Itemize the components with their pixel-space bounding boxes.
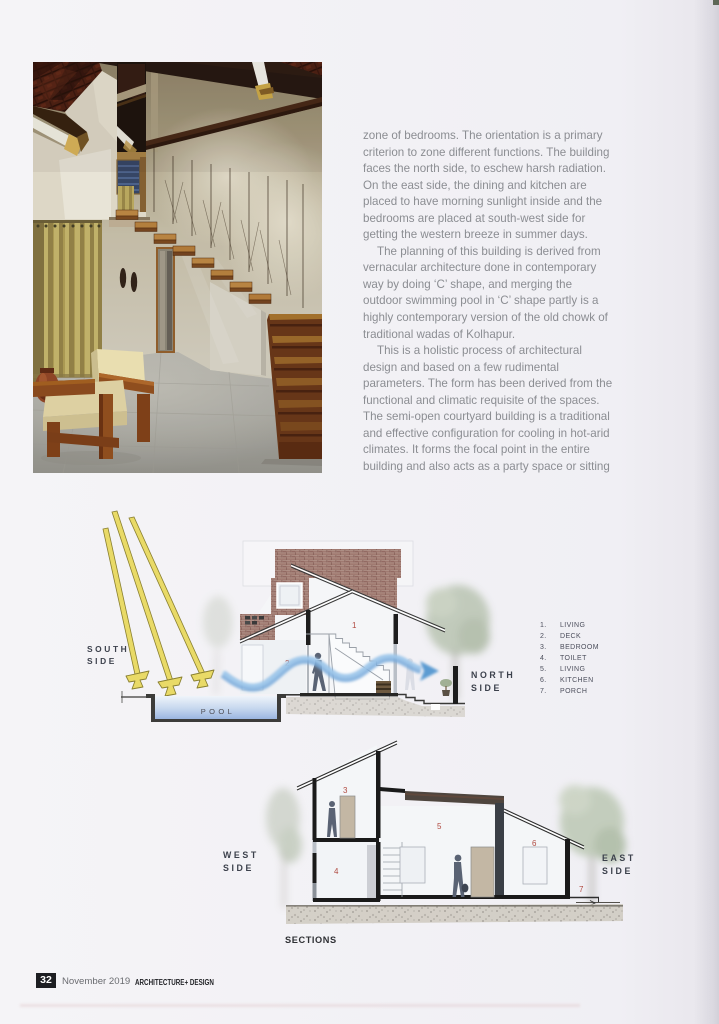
svg-text:SIDE: SIDE: [87, 656, 117, 666]
svg-text:WEST: WEST: [223, 850, 259, 860]
svg-text:KITCHEN: KITCHEN: [560, 677, 594, 684]
svg-text:7: 7: [579, 885, 584, 894]
svg-text:SIDE: SIDE: [471, 683, 502, 693]
svg-text:3: 3: [343, 786, 348, 795]
svg-text:SIDE: SIDE: [602, 866, 633, 876]
svg-text:EAST: EAST: [602, 853, 636, 863]
svg-text:1: 1: [352, 621, 357, 630]
svg-text:4.: 4.: [540, 655, 547, 662]
svg-text:2.: 2.: [540, 633, 547, 640]
svg-text:SECTIONS: SECTIONS: [285, 935, 337, 945]
svg-text:6: 6: [532, 839, 537, 848]
svg-text:LIVING: LIVING: [560, 666, 585, 673]
svg-text:7.: 7.: [540, 688, 547, 695]
svg-text:PORCH: PORCH: [560, 688, 587, 695]
svg-text:SIDE: SIDE: [223, 863, 254, 873]
svg-text:POOL: POOL: [201, 707, 235, 716]
svg-text:LIVING: LIVING: [560, 622, 585, 629]
svg-text:3.: 3.: [540, 644, 547, 651]
svg-text:DECK: DECK: [560, 633, 581, 640]
svg-text:1.: 1.: [540, 622, 547, 629]
svg-text:5.: 5.: [540, 666, 547, 673]
svg-text:TOILET: TOILET: [560, 655, 587, 662]
svg-text:5: 5: [437, 822, 442, 831]
svg-text:6.: 6.: [540, 677, 547, 684]
svg-text:SOUTH: SOUTH: [87, 644, 129, 654]
svg-text:NORTH: NORTH: [471, 670, 515, 680]
svg-text:4: 4: [334, 867, 339, 876]
svg-text:BEDROOM: BEDROOM: [560, 644, 599, 651]
